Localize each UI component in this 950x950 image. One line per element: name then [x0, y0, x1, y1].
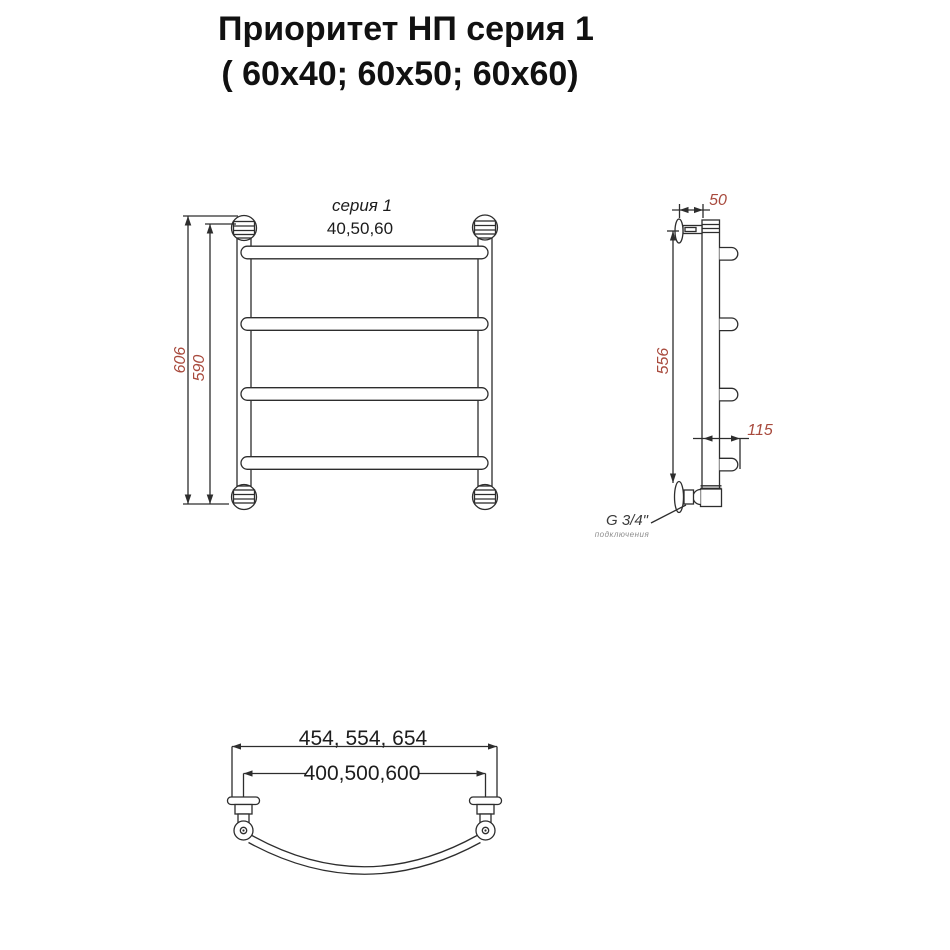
page-title-line1: Приоритет НП серия 1	[146, 11, 666, 48]
technical-drawing	[0, 0, 950, 950]
dim-mount-height-556: 556	[655, 336, 673, 386]
front-view-drawing	[183, 215, 498, 510]
thread-size-label: G 3/4"	[592, 513, 662, 530]
dim-outer-width-label: 454, 554, 654	[263, 727, 463, 750]
front-view-series-label: серия 1	[262, 197, 462, 216]
dim-inner-width-label: 400,500,600	[262, 762, 462, 785]
dim-overall-height-606: 606	[172, 335, 190, 385]
dim-rail-height-590: 590	[191, 343, 209, 393]
dim-bracket-depth-50: 50	[693, 192, 743, 210]
page-title-line2: ( 60х40; 60х50; 60х60)	[140, 56, 660, 93]
dim-bar-depth-115: 115	[735, 422, 785, 440]
thread-note-label: подключения	[582, 531, 662, 540]
front-view-width-label: 40,50,60	[260, 220, 460, 239]
drawing-sheet: Приоритет НП серия 1 ( 60х40; 60х50; 60х…	[0, 0, 950, 950]
